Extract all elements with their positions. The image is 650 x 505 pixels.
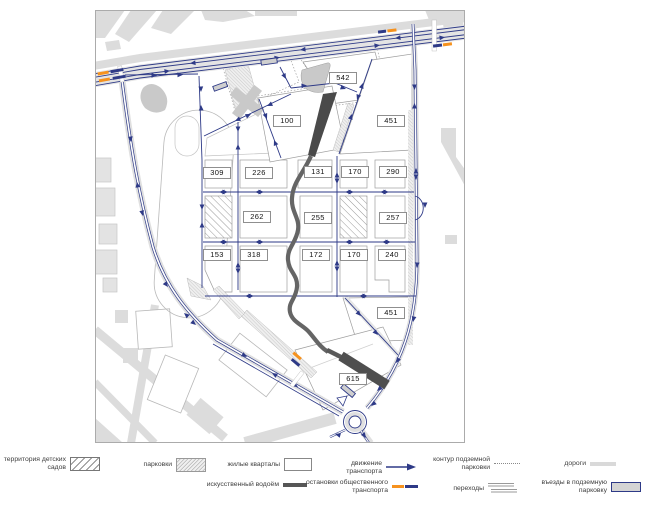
residential-swatch — [284, 458, 312, 471]
block-label: 451 — [377, 115, 405, 127]
block-label: 309 — [203, 167, 231, 179]
parking-entrance-swatch — [611, 482, 641, 492]
legend-item-transit-stops: остановки общественного транспорта — [300, 479, 418, 494]
block-label: 100 — [273, 115, 301, 127]
legend-label: территория детских садов — [2, 456, 66, 471]
legend-item-roads: дороги — [546, 460, 616, 468]
legend-label: остановки общественного транспорта — [300, 479, 388, 494]
kindergarten-swatch — [70, 457, 100, 471]
crossing-swatch — [488, 480, 518, 498]
block-label: 172 — [302, 249, 330, 261]
block-label: 255 — [304, 212, 332, 224]
legend-item-kindergarten: территория детских садов — [2, 456, 100, 471]
legend-item-water: искусственный водоём — [203, 481, 307, 489]
legend-item-parking: парковки — [112, 458, 206, 472]
block-label: 542 — [329, 72, 357, 84]
block-label: 451 — [377, 307, 405, 319]
legend-label: дороги — [546, 460, 586, 468]
legend-item-crossings: переходы — [428, 480, 518, 498]
legend-item-traffic: движение транспорта — [316, 459, 416, 477]
parking-swatch — [176, 458, 206, 472]
legend-item-underground-contour: контур подземной парковки — [426, 456, 520, 471]
block-label: 226 — [245, 167, 273, 179]
block-label: 615 — [339, 373, 367, 385]
legend-item-underground-entrances: въезды в подземную парковку — [533, 479, 641, 494]
block-label: 170 — [340, 249, 368, 261]
block-label: 257 — [379, 212, 407, 224]
master-plan-scheme: 542 100 451 309 226 131 170 290 262 255 … — [0, 0, 650, 505]
underground-contour-swatch — [494, 463, 520, 464]
legend-label: контур подземной парковки — [426, 456, 490, 471]
block-label: 240 — [378, 249, 406, 261]
legend-label: искусственный водоём — [203, 481, 279, 489]
roads-swatch — [590, 462, 616, 466]
block-label: 131 — [304, 166, 332, 178]
legend-label: переходы — [428, 485, 484, 493]
master-plan-map: 542 100 451 309 226 131 170 290 262 255 … — [95, 10, 465, 443]
block-label: 290 — [379, 166, 407, 178]
legend-label: движение транспорта — [316, 460, 382, 475]
legend-label: парковки — [112, 461, 172, 469]
block-label: 153 — [203, 249, 231, 261]
traffic-arrow-icon — [386, 459, 416, 477]
transit-stop-swatch — [392, 485, 418, 489]
legend-label: въезды в подземную парковку — [533, 479, 607, 494]
block-label: 170 — [341, 166, 369, 178]
block-label: 262 — [243, 211, 271, 223]
map-canvas — [95, 10, 465, 443]
legend-label: жилые кварталы — [218, 461, 280, 469]
block-label: 318 — [240, 249, 268, 261]
legend-item-residential: жилые кварталы — [218, 458, 312, 471]
